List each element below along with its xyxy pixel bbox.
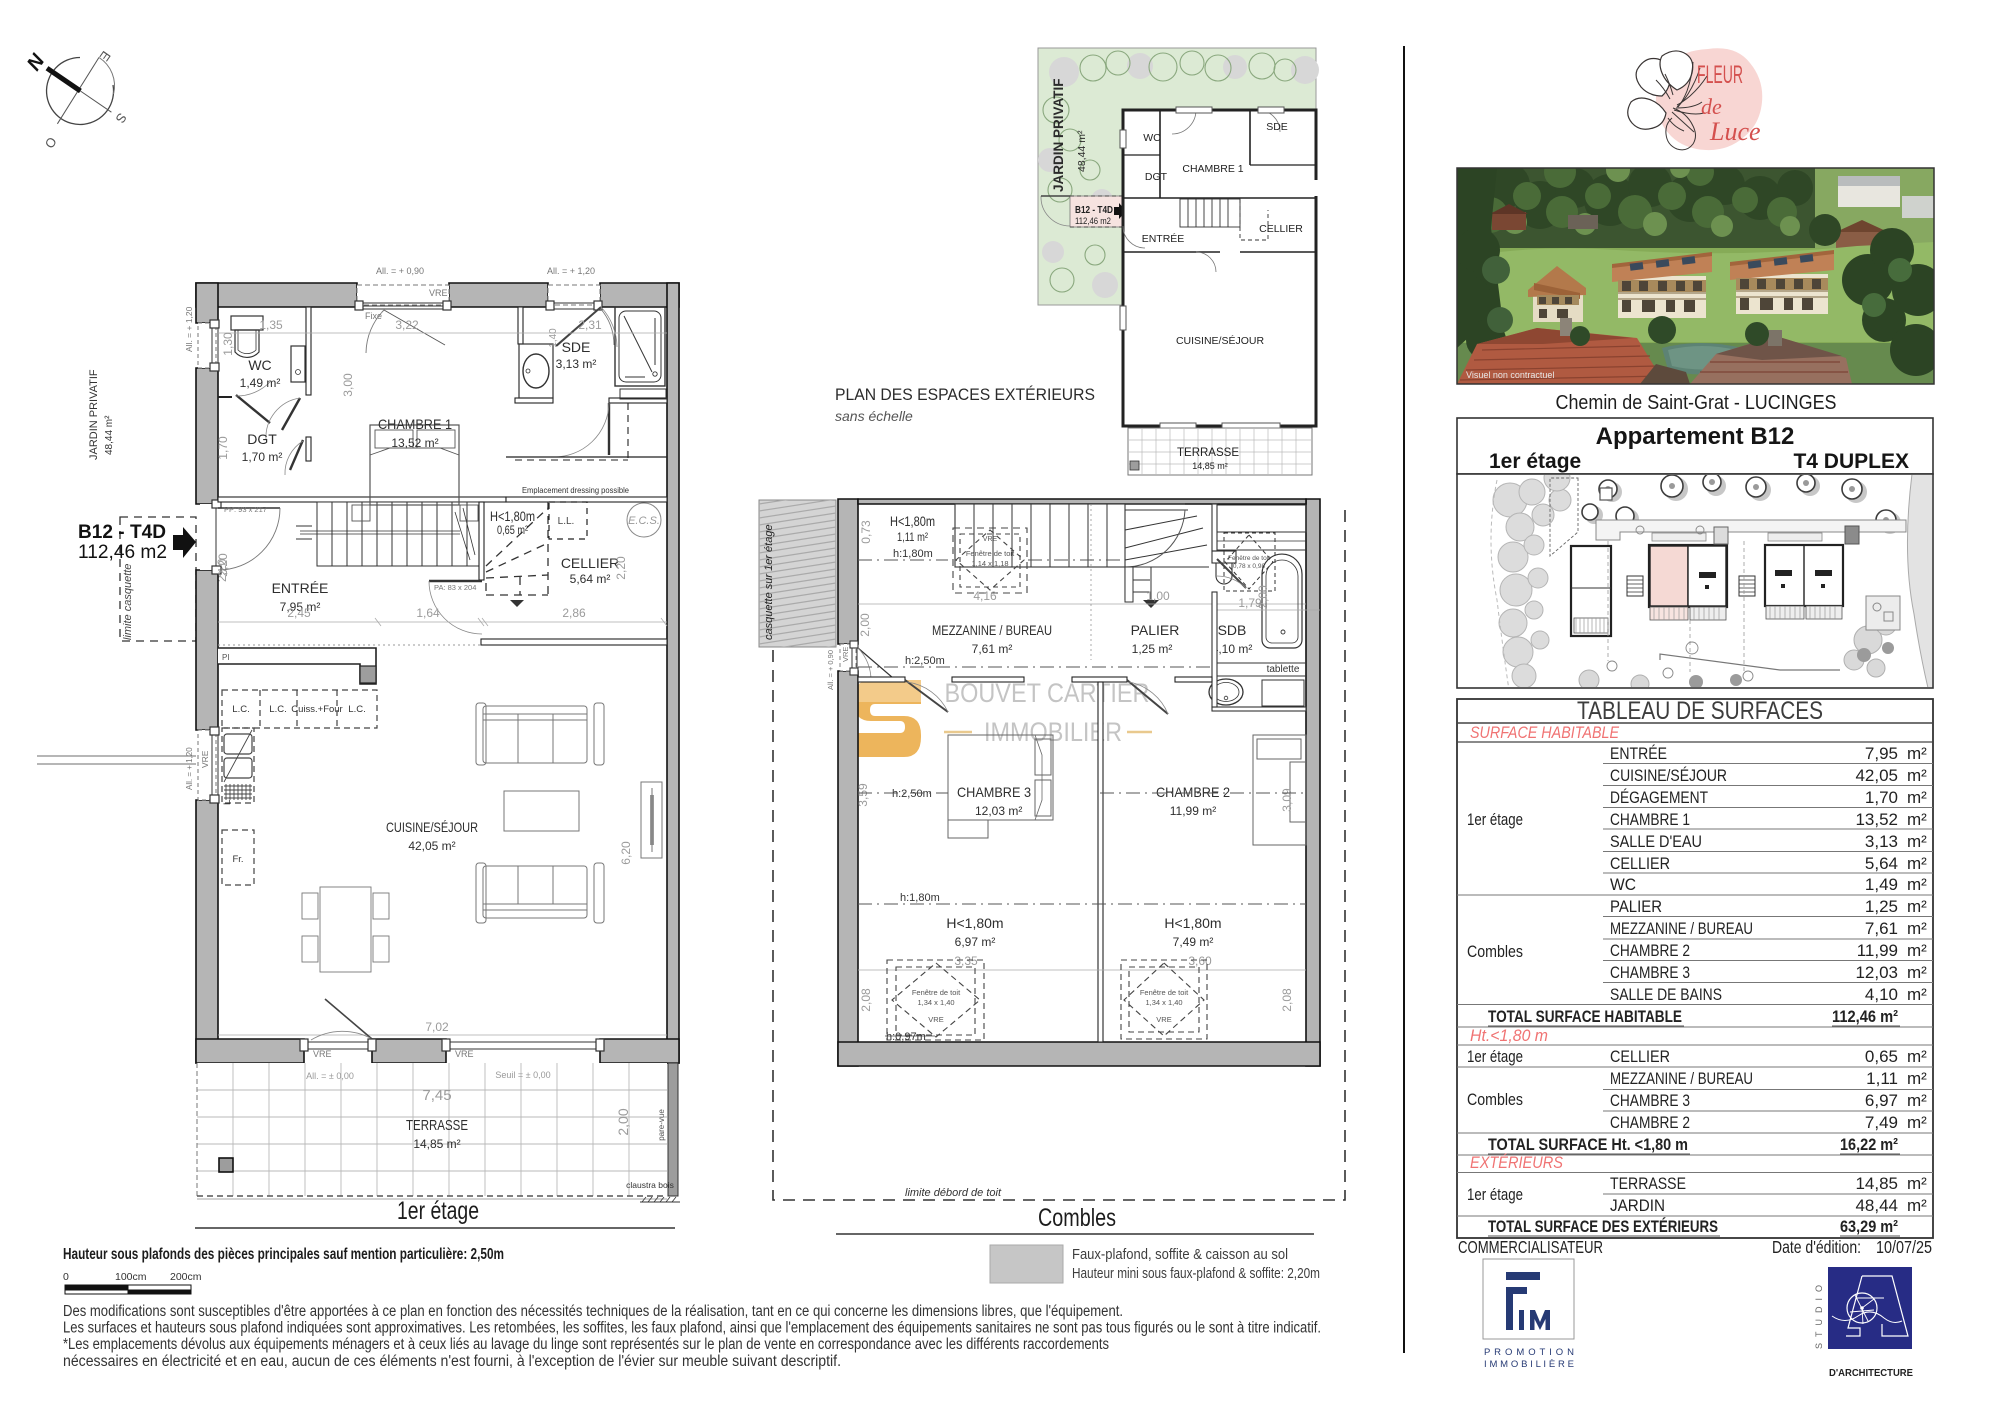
svg-text:Seuil = ± 0,00: Seuil = ± 0,00 — [495, 1070, 550, 1080]
svg-text:m²: m² — [1907, 963, 1927, 982]
svg-text:2,20: 2,20 — [216, 553, 230, 577]
svg-text:h:0,97m: h:0,97m — [886, 1031, 926, 1043]
svg-text:VRE: VRE — [841, 647, 850, 662]
svg-text:4,10 m²: 4,10 m² — [1212, 642, 1253, 656]
svg-text:0,73: 0,73 — [859, 520, 873, 544]
svg-text:Fixe: Fixe — [365, 311, 382, 321]
svg-text:DGT: DGT — [1145, 171, 1168, 183]
svg-text:L.L.: L.L. — [558, 516, 575, 527]
svg-text:JARDIN: JARDIN — [1610, 1196, 1665, 1215]
svg-text:48,44 m²: 48,44 m² — [1076, 130, 1088, 172]
svg-text:Emplacement dressing possible: Emplacement dressing possible — [522, 485, 629, 495]
svg-text:CHAMBRE 1: CHAMBRE 1 — [1182, 163, 1243, 175]
svg-text:m²: m² — [1907, 1047, 1927, 1066]
svg-text:h:1,80m: h:1,80m — [900, 892, 940, 904]
svg-text:CHAMBRE 2: CHAMBRE 2 — [1156, 784, 1230, 800]
svg-text:P R O M O T I O N: P R O M O T I O N — [1484, 1347, 1574, 1358]
svg-text:WC: WC — [248, 357, 271, 373]
svg-text:pare-vue: pare-vue — [657, 1109, 666, 1141]
svg-text:14,85: 14,85 — [1855, 1174, 1898, 1193]
svg-text:7,49: 7,49 — [1865, 1113, 1898, 1132]
svg-text:SDE: SDE — [1266, 121, 1288, 133]
svg-text:CHAMBRE 1: CHAMBRE 1 — [1610, 810, 1690, 829]
svg-text:1,35: 1,35 — [259, 318, 283, 332]
svg-text:100cm: 100cm — [115, 1271, 147, 1283]
svg-text:1,70: 1,70 — [1865, 788, 1898, 807]
svg-text:nécessaires en électricité et: nécessaires en électricité et en eau, au… — [63, 1353, 841, 1370]
svg-text:All. = + 1,20: All. = + 1,20 — [185, 747, 194, 790]
svg-text:0,65 m²: 0,65 m² — [497, 523, 528, 537]
svg-text:SDE: SDE — [562, 339, 591, 355]
svg-text:1,49 m²: 1,49 m² — [240, 376, 281, 390]
svg-text:42,05 m²: 42,05 m² — [408, 839, 455, 853]
svg-text:VRE: VRE — [200, 750, 210, 768]
svg-text:PI: PI — [222, 653, 230, 662]
svg-text:H<1,80m: H<1,80m — [490, 508, 535, 524]
svg-text:PA: 83 x 204: PA: 83 x 204 — [434, 583, 476, 592]
svg-text:7,49 m²: 7,49 m² — [1173, 935, 1214, 949]
svg-text:11,99: 11,99 — [1857, 941, 1898, 960]
svg-text:48,44: 48,44 — [1855, 1196, 1898, 1215]
svg-text:ENTRÉE: ENTRÉE — [1142, 232, 1185, 245]
svg-text:m²: m² — [1907, 832, 1927, 851]
svg-text:TERRASSE: TERRASSE — [1610, 1174, 1686, 1193]
svg-text:ENTRÉE: ENTRÉE — [272, 580, 329, 596]
svg-text:7,61 m²: 7,61 m² — [972, 642, 1013, 656]
svg-text:O: O — [42, 134, 60, 151]
svg-text:Hauteur sous plafonds des pièc: Hauteur sous plafonds des pièces princip… — [63, 1246, 504, 1263]
svg-text:2,00: 2,00 — [858, 613, 872, 637]
svg-text:10/07/25: 10/07/25 — [1876, 1237, 1932, 1257]
svg-text:CHAMBRE 3: CHAMBRE 3 — [1610, 963, 1690, 982]
svg-text:VRE: VRE — [983, 536, 998, 543]
svg-text:13,52 m²: 13,52 m² — [391, 436, 438, 450]
svg-text:0,65: 0,65 — [1865, 1047, 1898, 1066]
svg-text:48,44 m²: 48,44 m² — [104, 415, 115, 455]
svg-text:VRE: VRE — [1156, 1015, 1171, 1024]
svg-text:3,13 m²: 3,13 m² — [556, 357, 597, 371]
svg-text:STUDIO: STUDIO — [1814, 1279, 1824, 1349]
svg-text:PALIER: PALIER — [1131, 622, 1180, 638]
svg-text:B12 - T4D: B12 - T4D — [78, 522, 166, 543]
svg-text:1,14 x 1,18: 1,14 x 1,18 — [971, 559, 1008, 568]
svg-text:VRE: VRE — [928, 1015, 943, 1024]
svg-text:CHAMBRE 3: CHAMBRE 3 — [957, 784, 1031, 800]
svg-text:13,52: 13,52 — [1855, 810, 1898, 829]
svg-text:claustra bois: claustra bois — [626, 1180, 674, 1190]
svg-text:TOTAL SURFACE HABITABLE: TOTAL SURFACE HABITABLE — [1488, 1007, 1682, 1026]
svg-text:7,02: 7,02 — [425, 1020, 449, 1034]
svg-text:2,08: 2,08 — [859, 988, 873, 1012]
svg-text:Combles: Combles — [1038, 1204, 1116, 1232]
svg-text:1,34 x 1,40: 1,34 x 1,40 — [1145, 998, 1182, 1007]
svg-text:Fenêtre de toit: Fenêtre de toit — [1228, 555, 1270, 562]
svg-text:h:2,50m: h:2,50m — [892, 788, 932, 800]
svg-text:All. = ± 0,00: All. = ± 0,00 — [306, 1071, 354, 1081]
svg-text:6,20: 6,20 — [619, 841, 633, 865]
svg-text:E.C.S.: E.C.S. — [628, 515, 660, 527]
svg-text:2,08: 2,08 — [1280, 988, 1294, 1012]
svg-text:VRE: VRE — [429, 288, 448, 298]
svg-text:casquette sur 1er étage: casquette sur 1er étage — [763, 524, 775, 640]
svg-text:L: L — [222, 800, 233, 805]
svg-text:L.C.: L.C. — [348, 704, 365, 715]
svg-text:12,03 m²: 12,03 m² — [975, 804, 1022, 818]
svg-text:Visuel non contractuel: Visuel non contractuel — [1466, 370, 1554, 380]
svg-text:CUISINE/SÉJOUR: CUISINE/SÉJOUR — [386, 819, 478, 835]
svg-text:m²: m² — [1907, 854, 1927, 873]
svg-text:11,99 m²: 11,99 m² — [1170, 804, 1216, 818]
svg-text:WC: WC — [1143, 132, 1161, 144]
svg-text:2,00: 2,00 — [615, 1108, 631, 1135]
svg-text:Combles: Combles — [1467, 1090, 1523, 1109]
svg-text:DGT: DGT — [247, 431, 277, 447]
svg-text:1er étage: 1er étage — [397, 1197, 479, 1225]
svg-text:112,46 m2: 112,46 m2 — [78, 542, 167, 563]
svg-text:JARDIN PRIVATIF: JARDIN PRIVATIF — [1051, 78, 1066, 192]
svg-text:B12 - T4D: B12 - T4D — [1075, 205, 1113, 216]
svg-text:4,16: 4,16 — [973, 589, 997, 603]
svg-text:1,25: 1,25 — [1865, 897, 1898, 916]
svg-text:7,45: 7,45 — [422, 1087, 451, 1104]
svg-text:1,70: 1,70 — [216, 436, 230, 460]
svg-text:6,97 m²: 6,97 m² — [955, 935, 996, 949]
svg-text:PLAN DES ESPACES EXTÉRIEURS: PLAN DES ESPACES EXTÉRIEURS — [835, 385, 1095, 404]
svg-text:3,35: 3,35 — [954, 954, 978, 968]
svg-text:1,70 m²: 1,70 m² — [242, 450, 283, 464]
svg-text:3,13: 3,13 — [1865, 832, 1898, 851]
svg-text:m²: m² — [1907, 1113, 1927, 1132]
svg-text:3,00: 3,00 — [341, 373, 355, 397]
svg-text:112,46 m2: 112,46 m2 — [1075, 216, 1111, 226]
svg-text:MEZZANINE / BUREAU: MEZZANINE / BUREAU — [1610, 919, 1753, 938]
svg-text:1,30: 1,30 — [221, 332, 235, 356]
svg-text:m²: m² — [1907, 810, 1927, 829]
svg-text:CUISINE/SÉJOUR: CUISINE/SÉJOUR — [1610, 766, 1727, 785]
svg-text:16,22 m²: 16,22 m² — [1840, 1135, 1898, 1154]
svg-text:TOTAL SURFACE DES EXTÉRIEURS: TOTAL SURFACE DES EXTÉRIEURS — [1488, 1217, 1718, 1236]
svg-text:WC: WC — [1610, 875, 1636, 894]
svg-text:2,20: 2,20 — [614, 556, 628, 580]
svg-text:Fenêtre de toit: Fenêtre de toit — [966, 549, 1015, 558]
svg-text:TABLEAU DE SURFACES: TABLEAU DE SURFACES — [1577, 697, 1823, 725]
svg-text:1er étage: 1er étage — [1467, 1047, 1523, 1066]
svg-text:Faux-plafond, soffite & caisso: Faux-plafond, soffite & caisson au sol — [1072, 1246, 1288, 1263]
svg-text:6,97: 6,97 — [1865, 1091, 1898, 1110]
svg-text:2,31: 2,31 — [578, 318, 602, 332]
svg-text:Hauteur mini sous faux-plafond: Hauteur mini sous faux-plafond & soffite… — [1072, 1265, 1320, 1282]
svg-text:42,05: 42,05 — [1855, 766, 1898, 785]
svg-text:FLEUR: FLEUR — [1697, 61, 1743, 89]
svg-text:All. = + 1,20: All. = + 1,20 — [184, 306, 194, 352]
svg-text:Fenêtre de toit: Fenêtre de toit — [1140, 988, 1189, 997]
svg-text:N: N — [23, 50, 50, 75]
svg-text:200cm: 200cm — [170, 1271, 202, 1283]
svg-text:2,86: 2,86 — [562, 606, 586, 620]
svg-text:DÉGAGEMENT: DÉGAGEMENT — [1610, 788, 1708, 807]
svg-text:Des modifications sont suscept: Des modifications sont susceptibles d'êt… — [63, 1303, 1123, 1320]
svg-text:L.C.: L.C. — [269, 704, 286, 715]
svg-text:CUISINE/SÉJOUR: CUISINE/SÉJOUR — [1176, 334, 1265, 347]
svg-text:5,64 m²: 5,64 m² — [570, 572, 611, 586]
svg-text:0,78 x 0,98: 0,78 x 0,98 — [1233, 563, 1266, 570]
svg-text:1er étage: 1er étage — [1467, 810, 1523, 829]
svg-text:1,34 x 1,40: 1,34 x 1,40 — [917, 998, 954, 1007]
svg-text:Date d'édition:: Date d'édition: — [1772, 1237, 1861, 1257]
svg-text:CHAMBRE 2: CHAMBRE 2 — [1610, 1113, 1690, 1132]
svg-text:COMMERCIALISATEUR: COMMERCIALISATEUR — [1458, 1237, 1603, 1257]
svg-text:3,09: 3,09 — [1280, 788, 1294, 812]
svg-text:3,60: 3,60 — [1188, 954, 1212, 968]
svg-text:SALLE DE BAINS: SALLE DE BAINS — [1610, 985, 1722, 1004]
svg-text:m²: m² — [1907, 919, 1927, 938]
svg-text:SURFACE HABITABLE: SURFACE HABITABLE — [1470, 723, 1620, 742]
svg-text:3,22: 3,22 — [395, 318, 419, 332]
svg-text:4,10: 4,10 — [1865, 985, 1898, 1004]
svg-text:tablette: tablette — [1267, 664, 1300, 675]
svg-text:Cuiss.+Four: Cuiss.+Four — [291, 704, 342, 715]
svg-text:m²: m² — [1907, 1091, 1927, 1110]
svg-text:m²: m² — [1907, 941, 1927, 960]
svg-text:Fenêtre de toit: Fenêtre de toit — [912, 988, 961, 997]
svg-text:112,46 m²: 112,46 m² — [1832, 1007, 1898, 1026]
svg-text:H<1,80m: H<1,80m — [1164, 915, 1221, 931]
svg-text:2,00: 2,00 — [1256, 585, 1270, 609]
svg-text:Les surfaces et hauteurs sous: Les surfaces et hauteurs sous plafond in… — [63, 1320, 1321, 1337]
svg-text:1er étage: 1er étage — [1467, 1185, 1523, 1204]
svg-text:CELLIER: CELLIER — [1259, 223, 1303, 235]
svg-text:D'ARCHITECTURE: D'ARCHITECTURE — [1829, 1368, 1913, 1379]
svg-text:MEZZANINE / BUREAU: MEZZANINE / BUREAU — [1610, 1069, 1753, 1088]
svg-text:limite casquette: limite casquette — [122, 564, 134, 640]
svg-text:H<1,80m: H<1,80m — [946, 915, 1003, 931]
svg-text:limite débord de toit: limite débord de toit — [905, 1187, 1002, 1199]
svg-text:1,00: 1,00 — [1146, 589, 1170, 603]
svg-text:0: 0 — [63, 1271, 69, 1283]
svg-text:CHAMBRE 1: CHAMBRE 1 — [378, 416, 452, 432]
svg-text:*Les emplacements dévolus aux: *Les emplacements dévolus aux équipement… — [63, 1336, 1109, 1353]
svg-text:1,40: 1,40 — [548, 328, 559, 348]
svg-text:1er étage: 1er étage — [1489, 450, 1581, 473]
svg-text:1,11: 1,11 — [1866, 1069, 1898, 1088]
svg-text:PP: 93 x 217: PP: 93 x 217 — [224, 505, 267, 514]
svg-text:1,11 m²: 1,11 m² — [897, 530, 928, 544]
svg-text:Ht.<1,80 m: Ht.<1,80 m — [1470, 1026, 1548, 1045]
svg-text:1,64: 1,64 — [416, 606, 440, 620]
svg-text:S: S — [112, 110, 129, 126]
svg-text:VRE: VRE — [455, 1049, 474, 1059]
svg-text:2,45: 2,45 — [287, 606, 311, 620]
svg-text:h:1,80m: h:1,80m — [893, 548, 933, 560]
svg-text:m²: m² — [1907, 766, 1927, 785]
svg-text:1,25 m²: 1,25 m² — [1132, 642, 1173, 656]
svg-text:m²: m² — [1907, 1069, 1927, 1088]
svg-text:Fr.: Fr. — [232, 854, 243, 865]
svg-text:63,29 m²: 63,29 m² — [1840, 1217, 1898, 1236]
svg-text:L.C.: L.C. — [232, 704, 249, 715]
svg-text:14,85 m²: 14,85 m² — [413, 1137, 460, 1151]
svg-text:CHAMBRE 3: CHAMBRE 3 — [1610, 1091, 1690, 1110]
svg-text:m²: m² — [1907, 897, 1927, 916]
svg-text:m²: m² — [1907, 875, 1927, 894]
svg-text:All. = + 0,90: All. = + 0,90 — [376, 266, 424, 276]
svg-text:TERRASSE: TERRASSE — [1177, 447, 1239, 459]
svg-text:Luce: Luce — [1709, 117, 1761, 146]
svg-text:m²: m² — [1907, 985, 1927, 1004]
svg-text:JARDIN PRIVATIF: JARDIN PRIVATIF — [88, 369, 100, 460]
svg-text:MEZZANINE / BUREAU: MEZZANINE / BUREAU — [932, 622, 1052, 638]
svg-text:sans échelle: sans échelle — [835, 408, 913, 424]
svg-text:m²: m² — [1907, 1174, 1927, 1193]
svg-text:7,61: 7,61 — [1865, 919, 1898, 938]
svg-text:m²: m² — [1907, 744, 1927, 763]
svg-text:Combles: Combles — [1467, 942, 1523, 961]
svg-text:7,95: 7,95 — [1865, 744, 1898, 763]
svg-text:m²: m² — [1907, 1196, 1927, 1215]
svg-text:SALLE D'EAU: SALLE D'EAU — [1610, 832, 1702, 851]
svg-text:All. = + 0,90: All. = + 0,90 — [826, 650, 835, 690]
svg-text:5,64: 5,64 — [1865, 854, 1898, 873]
svg-text:Appartement B12: Appartement B12 — [1596, 423, 1795, 450]
svg-text:SDB: SDB — [1218, 622, 1247, 638]
svg-text:h:2,50m: h:2,50m — [905, 655, 945, 667]
svg-text:CELLIER: CELLIER — [1610, 854, 1670, 873]
svg-text:PALIER: PALIER — [1610, 897, 1662, 916]
svg-text:Chemin de Saint-Grat - LUCINGE: Chemin de Saint-Grat - LUCINGES — [1556, 392, 1837, 414]
svg-text:T4 DUPLEX: T4 DUPLEX — [1793, 450, 1909, 473]
svg-text:14,85 m²: 14,85 m² — [1192, 461, 1228, 471]
svg-text:de: de — [1701, 94, 1722, 119]
svg-text:TERRASSE: TERRASSE — [406, 1117, 468, 1134]
svg-text:CELLIER: CELLIER — [561, 555, 619, 571]
svg-text:1,49: 1,49 — [1865, 875, 1898, 894]
svg-text:I M M O B I L I È R E: I M M O B I L I È R E — [1484, 1359, 1574, 1370]
svg-text:m²: m² — [1907, 788, 1927, 807]
svg-text:TOTAL SURFACE Ht. <1,80 m: TOTAL SURFACE Ht. <1,80 m — [1488, 1135, 1688, 1154]
svg-text:ENTRÉE: ENTRÉE — [1610, 744, 1667, 763]
svg-text:3,59: 3,59 — [856, 783, 870, 807]
svg-text:12,03: 12,03 — [1855, 963, 1898, 982]
svg-text:CHAMBRE 2: CHAMBRE 2 — [1610, 941, 1690, 960]
svg-text:EXTÉRIEURS: EXTÉRIEURS — [1470, 1153, 1564, 1172]
svg-text:H<1,80m: H<1,80m — [890, 513, 935, 529]
svg-text:VRE: VRE — [313, 1049, 332, 1059]
svg-text:CELLIER: CELLIER — [1610, 1047, 1670, 1066]
svg-text:All. = + 1,20: All. = + 1,20 — [547, 266, 595, 276]
